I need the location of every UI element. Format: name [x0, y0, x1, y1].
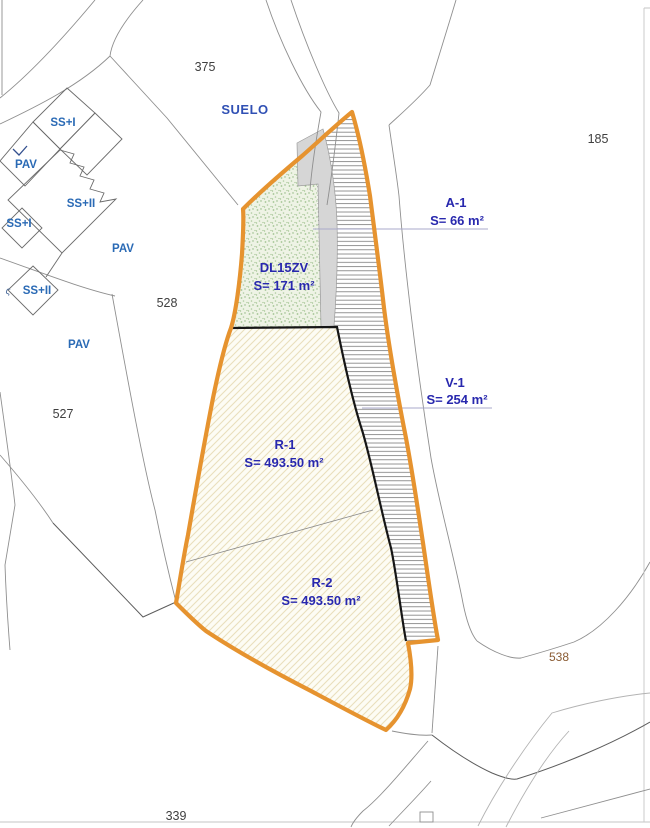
road-dark-bottomright — [432, 722, 650, 779]
road-bottom-1 — [351, 741, 428, 827]
parcel-number-185: 185 — [588, 132, 609, 146]
cadastral-map: 375 185 528 527 339 538 SUELO SS+I PAV S… — [0, 0, 650, 828]
parcel-number-527: 527 — [53, 407, 74, 421]
building-diamond-3 — [0, 122, 60, 186]
zone-label-r1: R-1 — [275, 437, 296, 452]
parcel-number-528: 528 — [157, 296, 178, 310]
road-bottom-3 — [478, 693, 650, 826]
boundary-topright-1 — [389, 0, 456, 125]
boundary-to-parcel — [110, 56, 238, 205]
left-sliver-1 — [0, 392, 15, 650]
road-bottom-wedge — [541, 789, 650, 818]
building-label-ss-i-left: SS+I — [6, 218, 31, 230]
frame-right — [644, 8, 650, 822]
zone-area-r1: S= 493.50 m² — [244, 455, 324, 470]
building-label-ss-i-top: SS+I — [50, 117, 75, 129]
road-curve-lower — [0, 0, 143, 124]
building-connector — [46, 253, 62, 277]
small-structure — [420, 812, 433, 822]
stair-symbol: ς — [6, 286, 11, 297]
zone-label-r2: R-2 — [312, 575, 333, 590]
zone-area-dl15zv: S= 171 m² — [253, 278, 315, 293]
left-sliver-2 — [0, 455, 53, 523]
stair-arrow-icon — [13, 146, 27, 155]
building-label-pav-bottom: PAV — [68, 339, 90, 351]
sliver-below-step — [432, 646, 438, 733]
map-canvas: 375 185 528 527 339 538 SUELO SS+I PAV S… — [0, 0, 650, 828]
parcel-number-339: 339 — [166, 809, 187, 823]
zone-label-v1: V-1 — [445, 375, 465, 390]
building-label-pav-mid: PAV — [112, 243, 134, 255]
parcel-number-538: 538 — [549, 650, 569, 664]
zone-label-dl15zv: DL15ZV — [260, 260, 309, 275]
boundary-527-descending — [112, 294, 176, 602]
tip-connector — [392, 731, 432, 735]
zone-area-r2: S= 493.50 m² — [281, 593, 361, 608]
road-bottom-2 — [389, 781, 431, 826]
building-label-pav-top: PAV — [15, 159, 37, 171]
zone-area-v1: S= 254 m² — [426, 392, 488, 407]
land-label-suelo: SUELO — [221, 102, 268, 117]
building-label-ss-ii-mid: SS+II — [67, 198, 95, 210]
building-label-ss-ii-bottom: SS+II — [23, 285, 51, 297]
road-curve-upper — [0, 0, 95, 98]
boundary-right-dip — [477, 562, 650, 658]
parcel-number-375: 375 — [195, 60, 216, 74]
zone-area-a1: S= 66 m² — [430, 213, 485, 228]
v-boundary-bottomleft — [53, 523, 176, 617]
zone-label-a1: A-1 — [446, 195, 467, 210]
